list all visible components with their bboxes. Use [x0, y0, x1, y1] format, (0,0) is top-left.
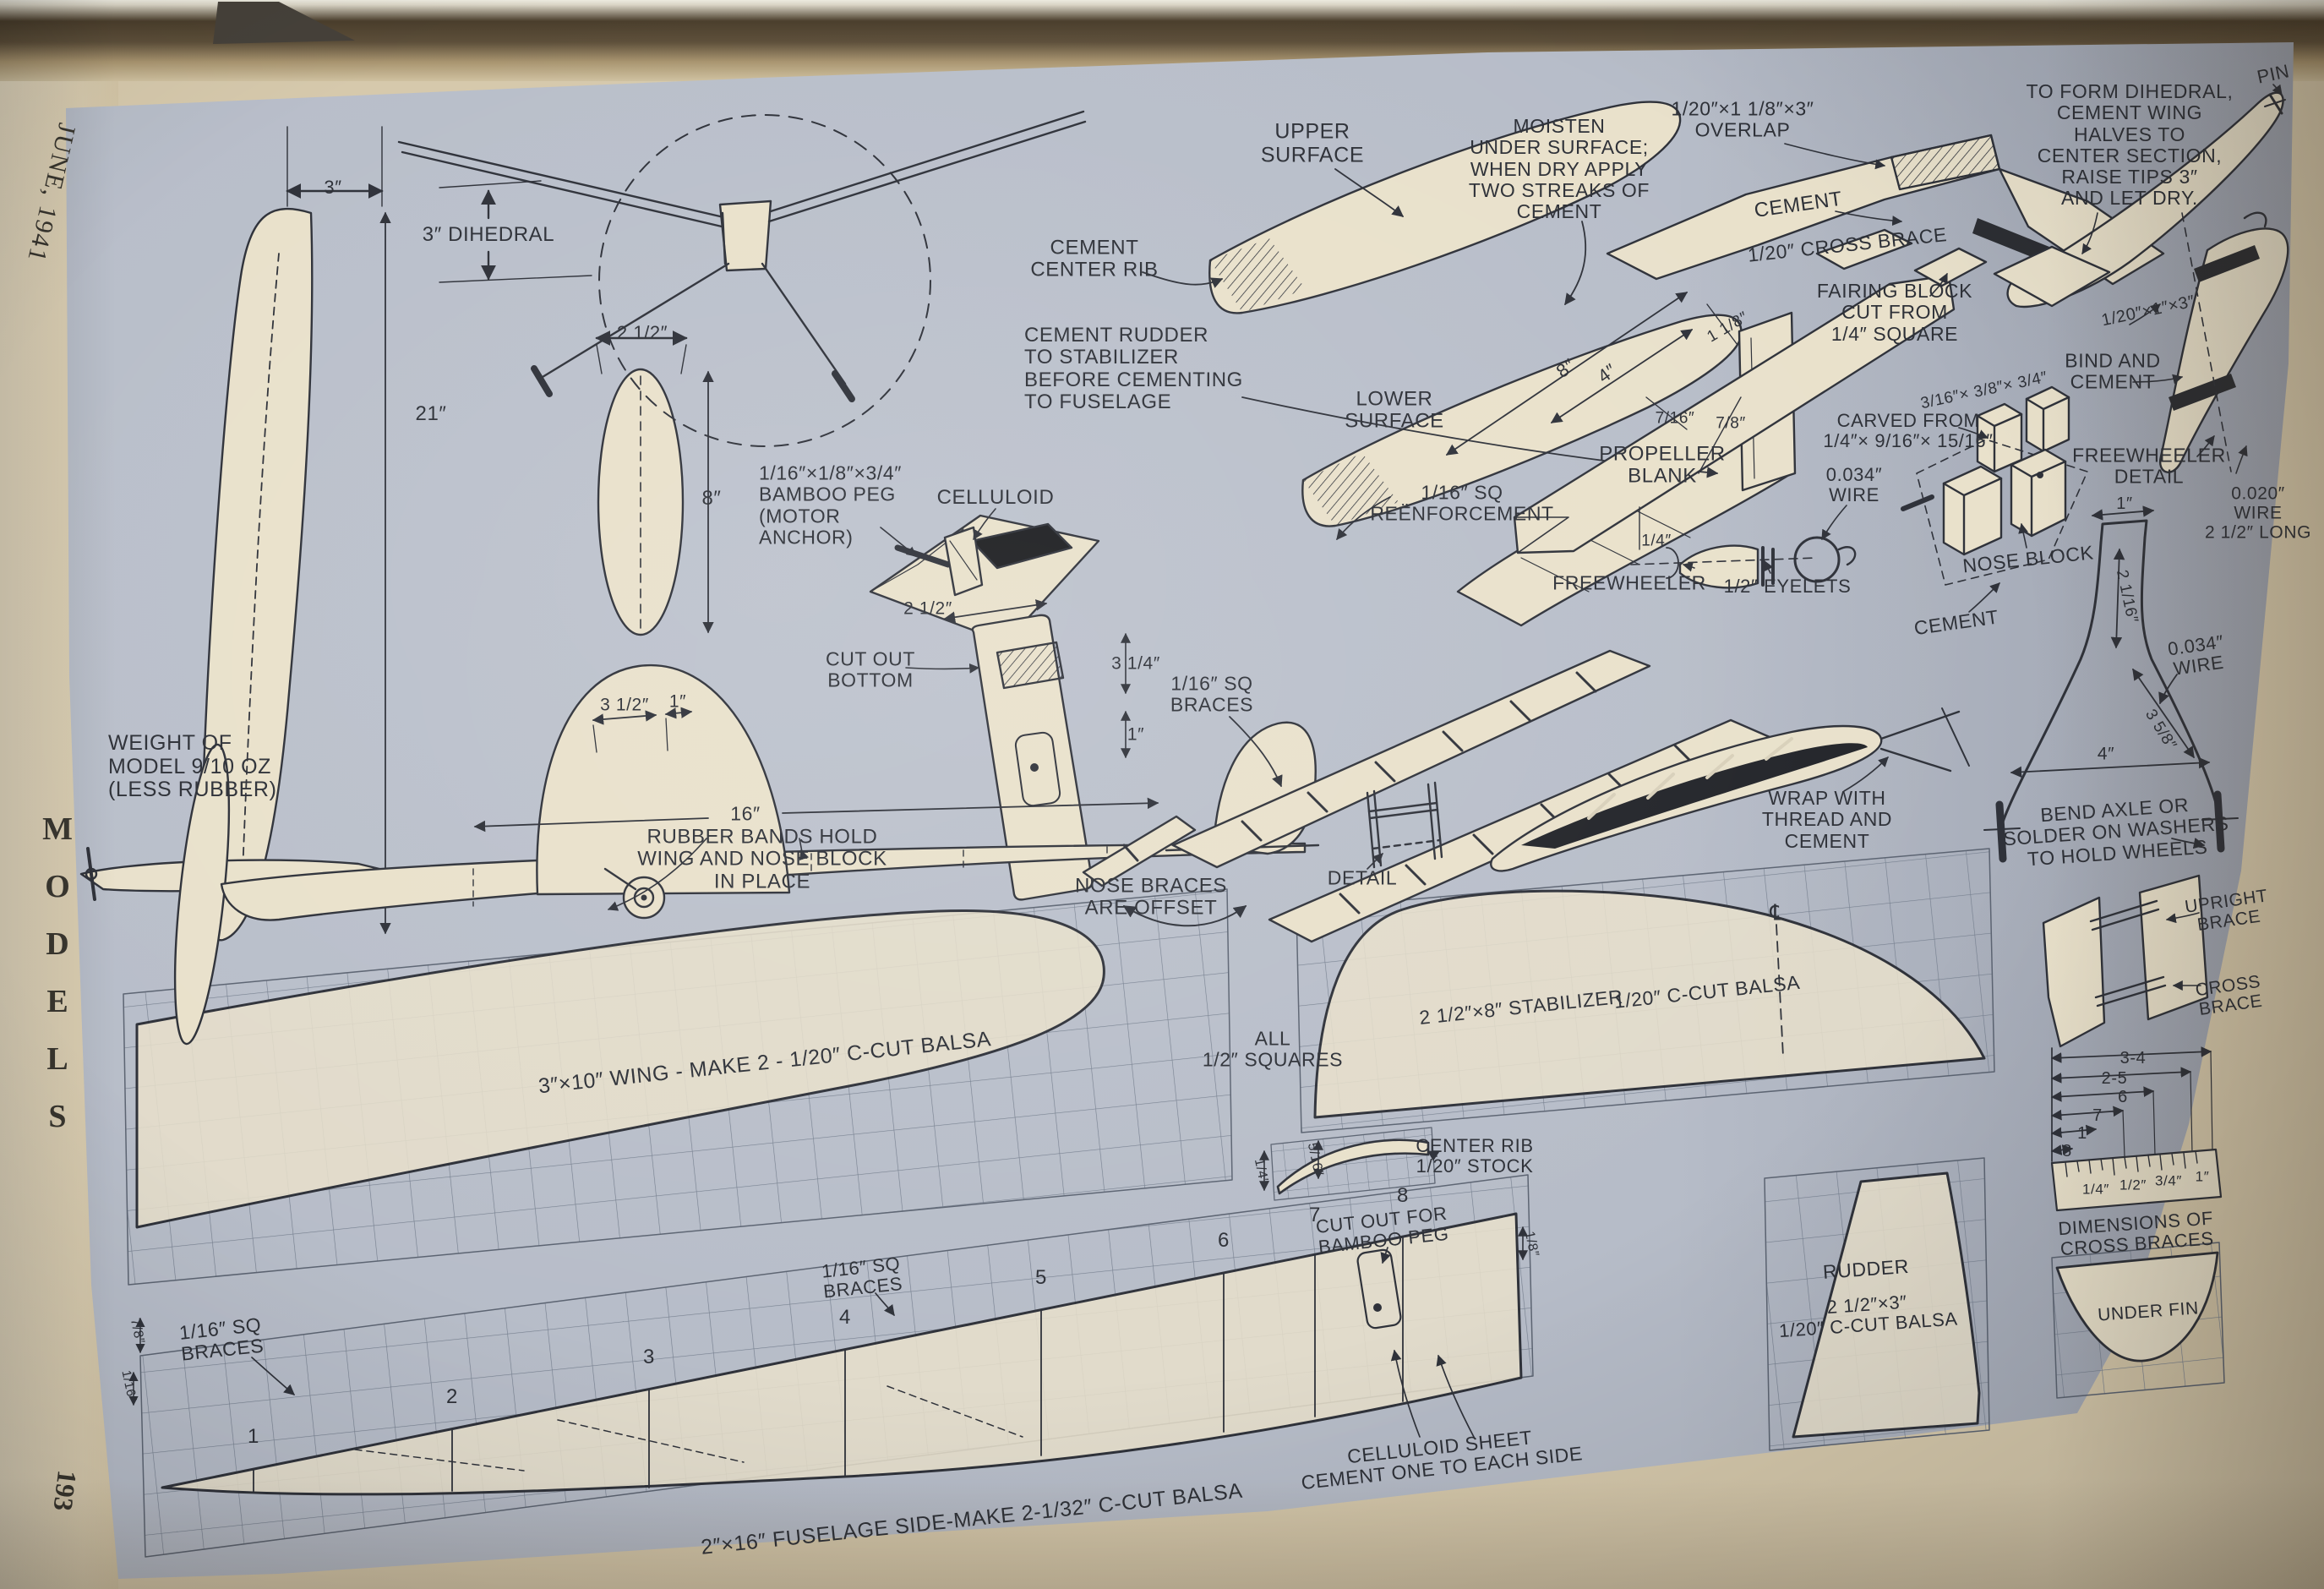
label-cross-brace-2: CROSS BRACE [2194, 972, 2264, 1020]
dim-rib-1-4: 1/4″ [1251, 1157, 1271, 1185]
label-eyelets: 1/2″ EYELETS [1724, 576, 1852, 597]
label-wire-034-a: 0.034″ WIRE [1826, 465, 1882, 505]
label-upper-surface: UPPER SURFACE [1261, 121, 1364, 167]
label-all-squares: ALL 1/2″ SQUARES [1203, 1029, 1343, 1072]
label-fairing-block: FAIRING BLOCK CUT FROM 1/4″ SQUARE [1817, 281, 1972, 345]
dim-prop-4: 4″ [1594, 360, 1620, 387]
dim-1-b: 1″ [1127, 724, 1144, 744]
dim-3: 3″ [324, 177, 341, 198]
ruler-1-2: 1/2″ [2119, 1178, 2147, 1194]
label-center-rib: CENTER RIB 1/20″ STOCK [1416, 1136, 1533, 1177]
ruler-3-4: 3/4″ [2155, 1174, 2182, 1190]
dim-rib-5-16: 5/16″ [1304, 1142, 1325, 1178]
label-bend-axle: BEND AXLE OR SOLDER ON WASHERS TO HOLD W… [2001, 792, 2231, 871]
dim-3-1-4: 3 1/4″ [1111, 653, 1160, 673]
label-lower-surface: LOWER SURFACE [1345, 389, 1444, 434]
dim-8-stab: 8″ [701, 488, 721, 510]
ladder-8: 8 [2062, 1142, 2072, 1160]
label-cross-brace-note: 1/20″ CROSS BRACE [1747, 224, 1948, 266]
dim-21: 21″ [416, 403, 447, 425]
label-rudder-template: RUDDER [1822, 1256, 1910, 1283]
label-cement-center-rib: CEMENT CENTER RIB [1030, 238, 1158, 282]
dim-2half-b: 2 1/2″ [903, 598, 952, 618]
station-1: 1 [248, 1426, 259, 1448]
ladder-3-4: 3-4 [2120, 1049, 2147, 1068]
label-wing-template: 3″×10″ WING - MAKE 2 - 1/20″ C-CUT BALSA [537, 1028, 992, 1099]
dim-1-c: 1″ [669, 691, 686, 711]
label-freewheeler: FREEWHEELER [1552, 572, 1706, 593]
label-reenforcement: 1/16″ SQ REËNFORCEMENT [1370, 483, 1553, 526]
dim-16: 16″ [730, 803, 761, 824]
label-cement-b: CEMENT [1912, 606, 1999, 639]
label-freewheeler-detail: FREEWHEELER DETAIL [2072, 445, 2226, 489]
station-2: 2 [446, 1386, 458, 1408]
dim-1-16-tip: 1/16″ [118, 1369, 139, 1403]
label-cement-overlap: CEMENT [1753, 188, 1844, 223]
label-bamboo-peg: 1/16″×1/8″×3/4″ BAMBOO PEG (MOTOR ANCHOR… [759, 462, 902, 548]
ladder-6: 6 [2118, 1088, 2128, 1106]
label-rubber-bands: RUBBER BANDS HOLD WING AND NOSE BLOCK IN… [637, 826, 887, 893]
dim-prop-8: 8″ [1552, 355, 1579, 382]
label-braces-left: 1/16″ SQ BRACES [178, 1314, 265, 1366]
dim-3-5-8: 3 5/8″ [2141, 707, 2179, 754]
label-form-dihedral: TO FORM DIHEDRAL, CEMENT WING HALVES TO … [2027, 81, 2234, 210]
label-moisten: MOISTEN UNDER SURFACE; WHEN DRY APPLY TW… [1469, 116, 1650, 222]
station-6: 6 [1218, 1230, 1230, 1252]
dim-4-gear: 4″ [2098, 744, 2114, 763]
dim-overlap-tip: 1/20″×1″×3″ [2100, 292, 2196, 330]
label-upright-brace: UPRIGHT BRACE [2184, 886, 2272, 936]
label-fuselage-template: 2″×16″ FUSELAGE SIDE-MAKE 2-1/32″ C-CUT … [700, 1480, 1244, 1560]
label-pin: PIN [2256, 61, 2292, 88]
label-nose-braces: NOSE BRACES ARE OFFSET [1075, 876, 1227, 920]
station-5: 5 [1035, 1267, 1047, 1289]
label-cut-out-peg: CUT OUT FOR BAMBOO PEG [1315, 1204, 1450, 1258]
plan-annotations: UPPER SURFACEMOISTEN UNDER SURFACE; WHEN… [0, 0, 2324, 1589]
label-wire-034-b: 0.034″ WIRE [2167, 631, 2229, 680]
label-propeller-blank: PROPELLER BLANK [1599, 444, 1725, 489]
label-braces-mid: 1/16″ SQ BRACES [1170, 674, 1253, 717]
label-celluloid: CELLULOID [937, 487, 1055, 509]
ruler-1: 1″ [2196, 1170, 2210, 1186]
dim-3-1-2: 3 1/2″ [600, 695, 649, 714]
dim-1-8-end: 1/8″ [1521, 1230, 1541, 1258]
symbol-centerline: ℄ [1770, 901, 1784, 926]
label-stabilizer-template: 2 1/2″×8″ STABILIZER [1418, 986, 1623, 1029]
dim-7-8: 7/8″ [1716, 416, 1746, 434]
dim-3-16: 3/16″× 3/8″× 3/4″ [1919, 369, 2049, 413]
section-title-vertical: MODELS [39, 811, 76, 1156]
label-nose-block: NOSE BLOCK [1961, 542, 2094, 576]
dim-7-8-tip: 7/8″ [127, 1317, 147, 1345]
station-3: 3 [643, 1346, 655, 1368]
label-cement-rudder: CEMENT RUDDER TO STABILIZER BEFORE CEMEN… [1024, 325, 1243, 414]
label-wire-020: 0.020″ WIRE 2 1/2″ LONG [2205, 483, 2311, 542]
label-weight: WEIGHT OF MODEL 9/10 OZ (LESS RUBBER) [108, 732, 277, 802]
dim-7-16: 7/16″ [1656, 411, 1695, 429]
station-8: 8 [1397, 1185, 1409, 1207]
dim-1-4: 1/4″ [1641, 533, 1672, 551]
label-bind-cement: BIND AND CEMENT [2065, 351, 2160, 394]
label-celluloid-sheet: CELLULOID SHEET CEMENT ONE TO EACH SIDE [1298, 1422, 1584, 1493]
dim-2-1-16: 2 1/16″ [2112, 569, 2141, 625]
label-under-fin: UNDER FIN [2097, 1298, 2199, 1324]
label-3-dihedral: 3″ DIHEDRAL [423, 224, 554, 246]
station-4: 4 [839, 1307, 851, 1329]
label-stabilizer-balsa: 1/20″ C-CUT BALSA [1613, 972, 1802, 1013]
label-overlap: 1/20″×1 1/8″×3″ OVERLAP [1671, 99, 1814, 142]
label-wrap: WRAP WITH THREAD AND CEMENT [1762, 788, 1892, 852]
dim-1-1-8: 1 1/8″ [1705, 309, 1752, 347]
ladder-1: 1 [2077, 1124, 2087, 1143]
dim-2half-a: 2 1/2″ [617, 323, 668, 343]
label-cut-out-bottom: CUT OUT BOTTOM [826, 649, 915, 692]
label-dimensions-caption: DIMENSIONS OF CROSS BRACES [2058, 1208, 2216, 1259]
label-braces-mid2: 1/16″ SQ BRACES [821, 1253, 904, 1302]
page-number: 193 [46, 1468, 83, 1512]
label-rudder-size: 2 1/2″×3″ 1/20″ C-CUT BALSA [1777, 1288, 1959, 1341]
ladder-7: 7 [2092, 1106, 2103, 1125]
dim-1-d: 1″ [2116, 494, 2132, 513]
label-detail: DETAIL [1328, 867, 1397, 888]
ladder-2-5: 2-5 [2102, 1069, 2128, 1088]
label-carved-from: CARVED FROM 1/4″× 9/16″× 15/16″ [1823, 411, 1993, 451]
ruler-1-4: 1/4″ [2082, 1182, 2109, 1199]
